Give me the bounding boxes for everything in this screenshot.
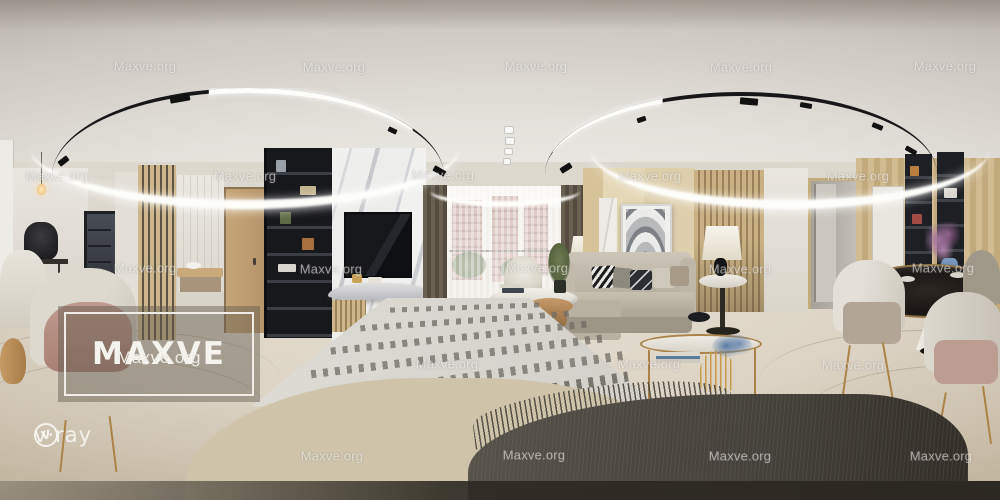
- watermark-text: Maxve.org: [618, 357, 681, 372]
- watermark-text: Maxve.org: [505, 59, 568, 74]
- watermark-text: Maxve.org: [303, 60, 366, 75]
- watermark-text: Maxve.org: [709, 449, 772, 464]
- watermark-text: Maxve.org: [827, 169, 890, 184]
- watermark-text: Maxve.org: [914, 59, 977, 74]
- watermark-text: Maxve.org: [300, 262, 363, 277]
- watermark-text: Maxve.org: [619, 169, 682, 184]
- maxve-logo-box: MAXVE Maxve.org: [64, 312, 254, 396]
- watermark-text: Maxve.org: [506, 261, 569, 276]
- watermark-text: Maxve.org: [503, 448, 566, 463]
- vray-logo-text: v·ray: [34, 423, 92, 447]
- vray-badge: V v·ray: [34, 420, 144, 450]
- maxve-logo-subtitle: Maxve.org: [117, 348, 201, 368]
- watermark-text: Maxve.org: [214, 169, 277, 184]
- watermark-text: Maxve.org: [709, 262, 772, 277]
- watermark-text: Maxve.org: [301, 449, 364, 464]
- watermark-text: Maxve.org: [26, 169, 89, 184]
- watermark-text: Maxve.org: [912, 261, 975, 276]
- watermark-text: Maxve.org: [416, 357, 479, 372]
- watermark-text: Maxve.org: [114, 261, 177, 276]
- panorama-360-living-room: Maxve.orgMaxve.orgMaxve.orgMaxve.orgMaxv…: [0, 0, 1000, 500]
- watermark-text: Maxve.org: [114, 59, 177, 74]
- watermark-text: Maxve.org: [822, 358, 885, 373]
- watermark-layer: Maxve.orgMaxve.orgMaxve.orgMaxve.orgMaxv…: [0, 0, 1000, 500]
- watermark-text: Maxve.org: [710, 60, 773, 75]
- watermark-text: Maxve.org: [412, 168, 475, 183]
- watermark-text: Maxve.org: [910, 449, 973, 464]
